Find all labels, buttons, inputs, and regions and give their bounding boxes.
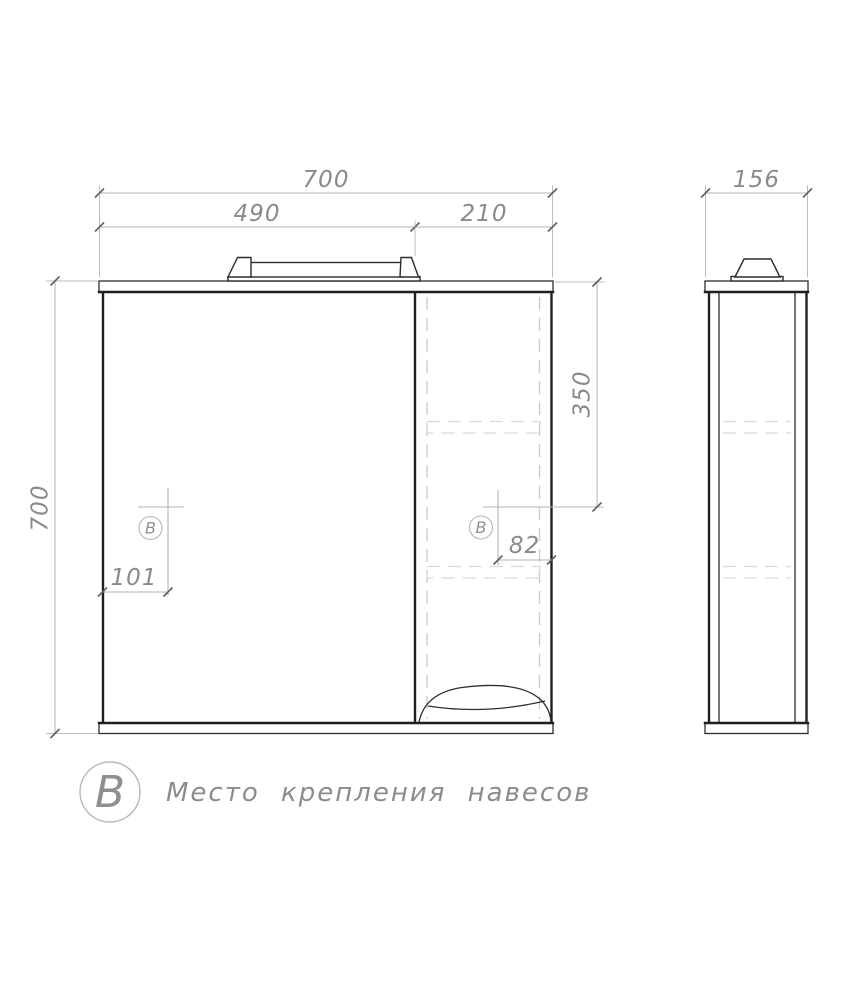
dim-mount-from-top: 350 [570, 278, 602, 512]
front-top-board [99, 281, 553, 292]
mirror-cabinet-drawing: B B [0, 0, 843, 1000]
dim-width-left-value: 490 [234, 201, 281, 227]
dimensions: 700 490 210 700 350 [28, 167, 813, 738]
front-bottom-board [99, 723, 553, 734]
side-top-board [705, 281, 808, 292]
dim-width-left: 490 [95, 201, 420, 232]
lamp-front [228, 258, 420, 282]
dim-width-total: 700 [95, 167, 557, 198]
dim-mount-from-top-value: 350 [570, 371, 596, 418]
mount-symbol-left: B [145, 519, 156, 538]
dim-mount-from-left-value: 101 [111, 565, 158, 591]
hidden-edges-side [723, 422, 791, 579]
side-view [705, 259, 808, 734]
lamp-side [731, 259, 783, 281]
dim-mount-from-left: 101 [98, 565, 173, 597]
hidden-shelf-upper [427, 422, 540, 434]
legend-label: Место крепления навесов [166, 778, 591, 808]
mount-symbol-right: B [476, 518, 487, 537]
dim-depth: 156 [701, 167, 812, 198]
side-bottom-board [705, 723, 808, 734]
hidden-shelf-lower [427, 567, 540, 579]
technical-drawing-page: B B [0, 0, 843, 1000]
legend: B Место крепления навесов [80, 762, 591, 822]
dim-mount-from-right: 82 [494, 533, 557, 565]
extension-lines [46, 186, 808, 734]
front-view: B B [99, 258, 604, 734]
dim-width-total-value: 700 [303, 167, 350, 193]
dim-height-total: 700 [28, 277, 60, 739]
dim-width-right: 210 [415, 201, 557, 232]
hidden-edges-front [427, 297, 540, 719]
legend-symbol: B [95, 767, 125, 818]
curved-shelf-front [419, 685, 551, 722]
dim-mount-from-right-value: 82 [509, 533, 540, 559]
dim-depth-value: 156 [733, 167, 780, 193]
dim-width-right-value: 210 [461, 201, 508, 227]
dim-height-total-value: 700 [28, 485, 54, 532]
